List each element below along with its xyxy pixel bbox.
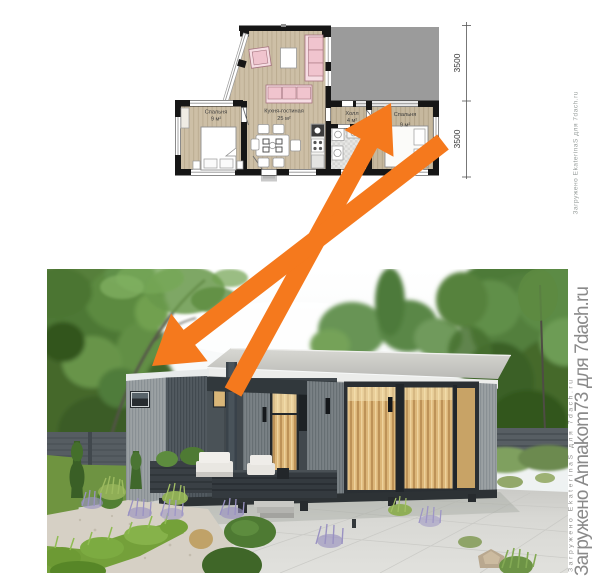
svg-text:Спальня: Спальня — [205, 110, 227, 116]
svg-text:25 м²: 25 м² — [277, 116, 291, 122]
svg-text:Загружено EkaterinaS для 7dach: Загружено EkaterinaS для 7dach.ru — [573, 91, 580, 214]
svg-text:Спальня: Спальня — [394, 112, 416, 118]
svg-text:4 м²: 4 м² — [347, 118, 358, 124]
svg-text:Загружено Annakom73 для 7dach.: Загружено Annakom73 для 7dach.ru — [572, 286, 593, 576]
svg-text:3500: 3500 — [452, 129, 462, 148]
svg-text:3500: 3500 — [452, 53, 462, 72]
svg-text:Кухня-гостиная: Кухня-гостиная — [264, 109, 304, 115]
svg-text:Холл: Холл — [345, 111, 358, 117]
svg-text:9 м²: 9 м² — [211, 117, 222, 123]
svg-text:9 м²: 9 м² — [400, 123, 411, 129]
